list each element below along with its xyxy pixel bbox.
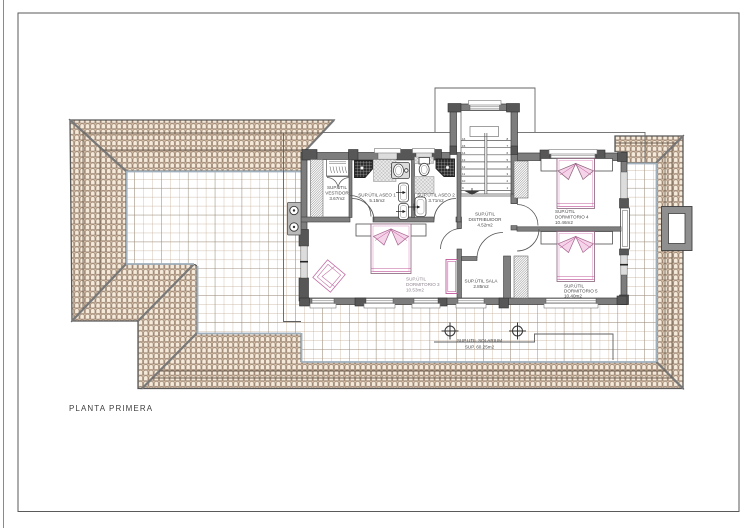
svg-text:SUP.ÚTIL SALA: SUP.ÚTIL SALA bbox=[465, 278, 499, 284]
svg-text:10.53m2: 10.53m2 bbox=[406, 288, 424, 293]
svg-text:12: 12 bbox=[462, 165, 466, 169]
svg-text:5.15m2: 5.15m2 bbox=[369, 198, 385, 203]
svg-text:15: 15 bbox=[462, 144, 466, 148]
svg-text:SUP.ÚTIL ASEO 2: SUP.ÚTIL ASEO 2 bbox=[417, 192, 455, 198]
svg-text:10.40m2: 10.40m2 bbox=[564, 294, 582, 299]
svg-text:SUP.ÚTIL: SUP.ÚTIL bbox=[564, 283, 585, 289]
svg-text:SUP.ÚTIL ASEO 1: SUP.ÚTIL ASEO 1 bbox=[358, 192, 396, 198]
svg-text:4.52m2: 4.52m2 bbox=[477, 223, 493, 228]
svg-text:VESTIDOR: VESTIDOR bbox=[325, 190, 349, 195]
svg-text:SUP. 60.25m2: SUP. 60.25m2 bbox=[465, 345, 495, 350]
svg-text:PLANTA PRIMERA: PLANTA PRIMERA bbox=[69, 404, 153, 413]
svg-text:14: 14 bbox=[462, 151, 466, 155]
svg-text:10: 10 bbox=[462, 179, 466, 183]
svg-text:SUP.UTIL SOLARIUM: SUP.UTIL SOLARIUM bbox=[457, 338, 502, 343]
svg-text:SUP.ÚTIL: SUP.ÚTIL bbox=[406, 276, 427, 282]
svg-text:SUP.ÚTIL: SUP.ÚTIL bbox=[475, 211, 496, 217]
svg-text:DORMITORIO 3: DORMITORIO 3 bbox=[406, 282, 440, 287]
svg-text:2.85m2: 2.85m2 bbox=[473, 284, 489, 289]
svg-text:16: 16 bbox=[462, 137, 466, 141]
svg-text:11: 11 bbox=[462, 172, 465, 176]
svg-text:3.67m2: 3.67m2 bbox=[329, 196, 345, 201]
svg-text:10.46m2: 10.46m2 bbox=[555, 220, 573, 225]
svg-text:SUP.ÚTIL: SUP.ÚTIL bbox=[327, 184, 348, 190]
svg-text:13: 13 bbox=[462, 158, 466, 162]
svg-text:DISTRIBUIDOR: DISTRIBUIDOR bbox=[469, 217, 503, 222]
svg-text:SUP.ÚTIL: SUP.ÚTIL bbox=[555, 208, 576, 214]
svg-text:DORMITORIO 4: DORMITORIO 4 bbox=[555, 215, 589, 220]
svg-text:3.71m2: 3.71m2 bbox=[428, 198, 444, 203]
